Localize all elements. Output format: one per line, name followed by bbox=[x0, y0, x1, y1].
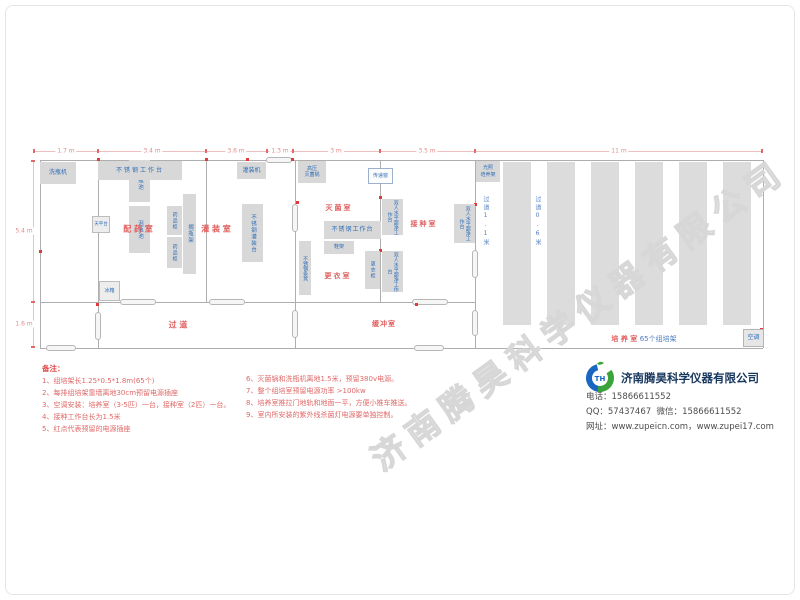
note-item-7: 7、整个组培室预留电源功率 >100kw bbox=[246, 386, 366, 396]
wechat-value: 15866611552 bbox=[682, 407, 742, 417]
medicine-cabinet-2: 药品柜 bbox=[167, 237, 182, 268]
lighting-culture-rack: 光照 培养架 bbox=[476, 161, 500, 182]
dim-left-1: 5.4 m bbox=[13, 228, 34, 235]
note-item-9: 9、室内所安装的紫外线杀菌灯电源要单独控制。 bbox=[246, 410, 397, 420]
dimension-tick bbox=[292, 149, 294, 153]
culture-rack-row bbox=[591, 162, 619, 325]
culture-rack-row bbox=[547, 162, 575, 325]
room-label-corridor: 过 道 bbox=[169, 320, 188, 331]
power-socket-dot bbox=[291, 158, 294, 161]
door-opening bbox=[209, 299, 245, 305]
door-opening bbox=[292, 204, 298, 232]
dim-top-2: 3.4 m bbox=[141, 148, 162, 155]
dim-top-4: 1.3 m bbox=[269, 148, 290, 155]
web-separator: ， bbox=[688, 422, 697, 432]
room-label-buffer: 缓冲室 bbox=[372, 319, 396, 329]
steel-worktable-sterilize: 不锈钢工作台 bbox=[324, 221, 381, 239]
floorplan-sheet: 1.7 m 3.4 m 3.6 m 1.3 m 3 m 3.5 m 11 m 5… bbox=[0, 0, 800, 600]
pass-through-window: 传递窗 bbox=[368, 168, 393, 184]
laminar-flow-bench-1: 双人水平超净工作台 bbox=[382, 199, 403, 235]
culture-rack-row bbox=[679, 162, 707, 325]
door-opening bbox=[414, 345, 444, 351]
culture-rack-row bbox=[723, 162, 751, 325]
culture-room-name: 培 养 室 bbox=[611, 335, 637, 343]
culture-rack-row bbox=[635, 162, 663, 325]
power-socket-dot bbox=[205, 158, 208, 161]
autoclave: 高压 灭菌锅 bbox=[298, 161, 326, 183]
dim-top-1: 1.7 m bbox=[55, 148, 76, 155]
room-label-preparation: 配 药 室 bbox=[123, 224, 153, 235]
room-label-changing: 更衣室 bbox=[325, 271, 352, 281]
power-socket-dot bbox=[246, 158, 249, 161]
dimension-tick bbox=[33, 149, 35, 153]
company-qq-line: QQ：57437467 微信：15866611552 bbox=[586, 405, 742, 417]
wall-right-exterior bbox=[763, 160, 764, 348]
dim-top-5: 3 m bbox=[328, 148, 344, 155]
web-value-1: www.zupeicn.com bbox=[612, 422, 689, 432]
dim-top-6: 3.5 m bbox=[416, 148, 437, 155]
steel-worktable-top: 不锈钢工作台 bbox=[98, 161, 182, 180]
web-label: 网址： bbox=[586, 422, 612, 432]
note-item-2: 2、每排组培架靠墙离地30cm预留电源插座 bbox=[42, 388, 178, 398]
aisle-width-label-1: 过道1.1米 bbox=[481, 196, 490, 248]
door-opening bbox=[120, 299, 156, 305]
note-item-4: 4、接种工作台长为1.5米 bbox=[42, 412, 121, 422]
culture-rack-row bbox=[503, 162, 531, 325]
note-item-3: 3、空调安装：培养室（3-5匹）一台，接种室（2匹）一台。 bbox=[42, 400, 230, 410]
balance-table: 天平台 bbox=[92, 216, 110, 233]
note-item-8: 8、培养室推拉门地轨和地面一平，方便小推车推送。 bbox=[246, 398, 411, 408]
dim-top-3: 3.6 m bbox=[225, 148, 246, 155]
company-phone-line: 电话：15866611552 bbox=[586, 390, 671, 402]
steel-bench: 不锈钢条凳 bbox=[299, 241, 311, 295]
door-opening bbox=[95, 312, 101, 340]
dimension-tick bbox=[31, 160, 35, 162]
refrigerator: 冰箱 bbox=[99, 281, 120, 301]
dim-top-7: 11 m bbox=[609, 148, 628, 155]
bottle-washer: 洗瓶机 bbox=[40, 162, 76, 184]
company-logo: TH bbox=[583, 360, 617, 394]
medicine-cabinet-1: 药品柜 bbox=[167, 206, 182, 235]
power-socket-dot bbox=[296, 201, 299, 204]
dim-left-2: 1.6 m bbox=[13, 321, 34, 328]
room-label-inoculation: 接种室 bbox=[411, 219, 438, 229]
company-web-line: 网址：www.zupeicn.com，www.zupei17.com bbox=[586, 420, 774, 432]
air-conditioner: 空调 bbox=[743, 329, 764, 347]
phone-label: 电话： bbox=[586, 392, 612, 402]
dimension-tick bbox=[474, 149, 476, 153]
wall-corridor bbox=[40, 302, 475, 303]
power-socket-dot bbox=[39, 250, 42, 253]
note-item-1: 1、组培架长1.25*0.5*1.8m(65个) bbox=[42, 376, 155, 386]
steel-filling-table: 不锈钢灌装台 bbox=[242, 204, 263, 262]
dimension-tick bbox=[205, 149, 207, 153]
qq-value: 57437467 bbox=[608, 407, 651, 417]
power-socket-dot bbox=[415, 303, 418, 306]
wall-top-right-segment bbox=[293, 160, 763, 161]
web-value-2: www.zupei17.com bbox=[697, 422, 774, 432]
laminar-flow-bench-2: 双人水平超净工作台 bbox=[382, 251, 403, 292]
bottle-shelf: 搁瓶架 bbox=[183, 194, 196, 274]
door-opening bbox=[472, 250, 478, 278]
door-opening bbox=[292, 310, 298, 338]
room-label-sterilization: 灭菌室 bbox=[326, 203, 353, 213]
notes-title: 备注： bbox=[42, 363, 65, 374]
note-item-6: 6、灭菌锅和洗瓶机离地1.5米，预留380v电源。 bbox=[246, 374, 398, 384]
shoe-rack: 鞋架 bbox=[324, 241, 354, 254]
power-socket-dot bbox=[96, 303, 99, 306]
filling-machine: 灌装机 bbox=[237, 162, 266, 179]
locker: 更衣柜 bbox=[365, 251, 380, 289]
qq-label: QQ： bbox=[586, 407, 608, 417]
company-name: 济南腾昊科学仪器有限公司 bbox=[621, 370, 759, 386]
wall-left-exterior bbox=[40, 160, 41, 348]
dimension-tick bbox=[31, 346, 35, 348]
dimension-tick bbox=[761, 149, 763, 153]
dimension-tick bbox=[266, 149, 268, 153]
culture-room-rack-count: 65个组培架 bbox=[640, 335, 677, 343]
phone-value: 15866611552 bbox=[612, 392, 672, 402]
dimension-tick bbox=[379, 149, 381, 153]
dimension-tick bbox=[97, 149, 99, 153]
door-opening bbox=[266, 157, 292, 163]
dimension-tick bbox=[31, 301, 35, 303]
room-label-filling: 灌 装 室 bbox=[201, 224, 231, 235]
door-opening bbox=[46, 345, 76, 351]
door-opening bbox=[472, 310, 478, 336]
wechat-label: 微信： bbox=[651, 407, 682, 417]
wall-bottom bbox=[40, 348, 763, 349]
note-item-5: 5、红点代表预留的电源插座 bbox=[42, 424, 130, 434]
aisle-width-label-2: 过道0.6米 bbox=[533, 196, 542, 248]
company-logo-swirl: TH bbox=[583, 360, 617, 394]
laminar-flow-bench-3: 双人水平超净工作台 bbox=[454, 204, 475, 243]
room-label-culture: 培 养 室 65个组培架 bbox=[611, 334, 676, 344]
logo-monogram: TH bbox=[595, 375, 606, 383]
